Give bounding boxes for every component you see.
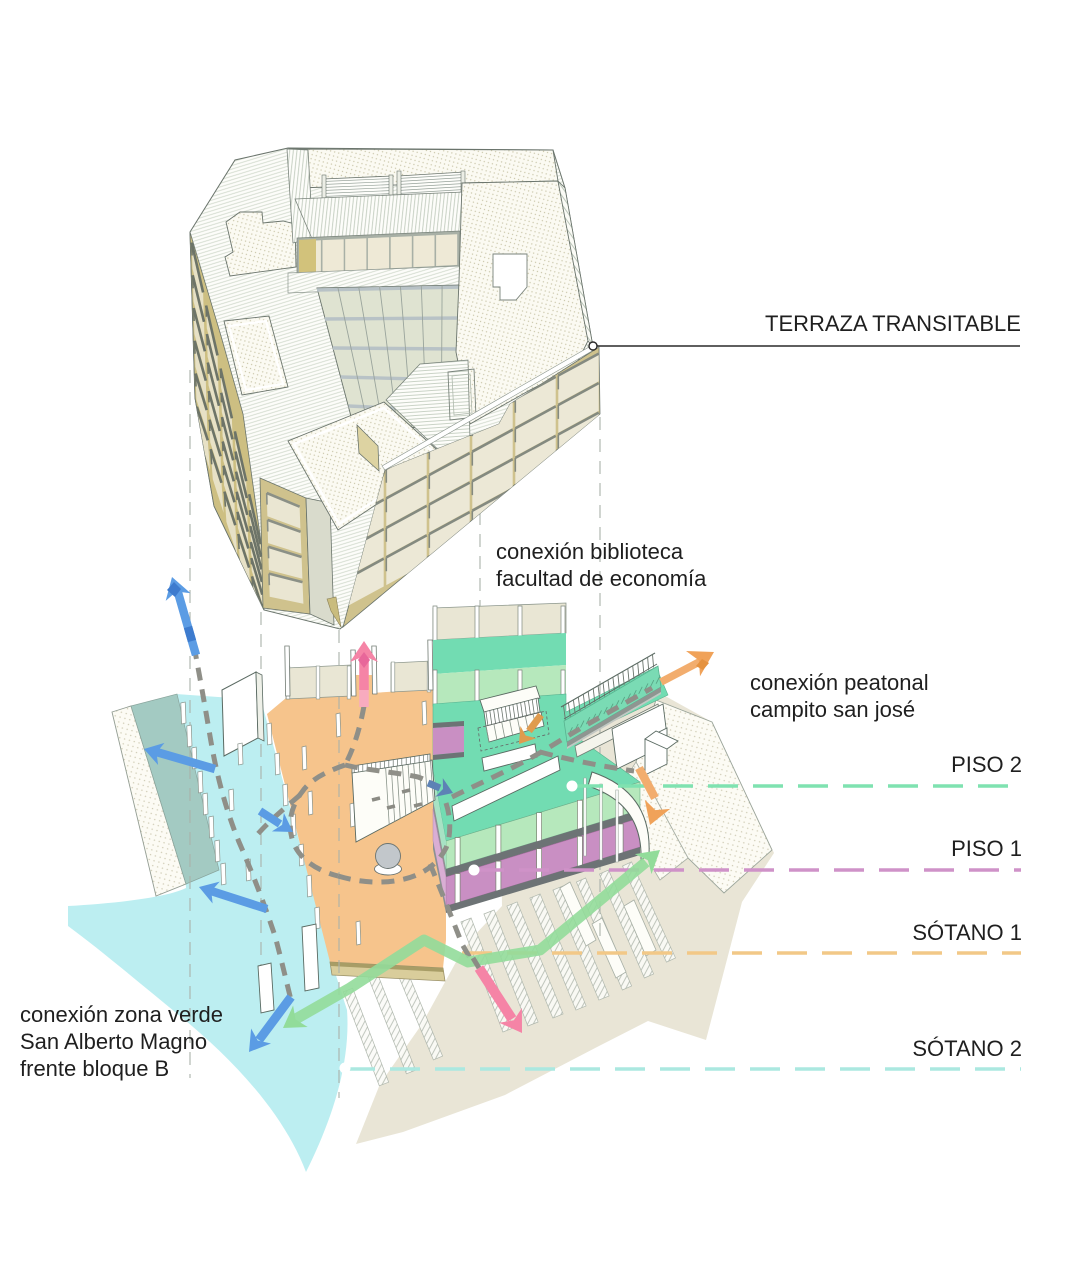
- svg-text:facultad de economía: facultad de economía: [496, 566, 707, 591]
- svg-text:SÓTANO 1: SÓTANO 1: [912, 920, 1022, 945]
- svg-text:PISO 2: PISO 2: [951, 752, 1022, 777]
- svg-text:conexión biblioteca: conexión biblioteca: [496, 539, 684, 564]
- svg-text:conexión peatonal: conexión peatonal: [750, 670, 929, 695]
- svg-text:frente bloque B: frente bloque B: [20, 1056, 169, 1081]
- svg-text:SÓTANO 2: SÓTANO 2: [912, 1036, 1022, 1061]
- svg-text:TERRAZA TRANSITABLE: TERRAZA TRANSITABLE: [765, 311, 1021, 336]
- svg-text:San Alberto Magno: San Alberto Magno: [20, 1029, 207, 1054]
- svg-text:PISO 1: PISO 1: [951, 836, 1022, 861]
- svg-text:campito san josé: campito san josé: [750, 697, 915, 722]
- svg-text:conexión zona verde: conexión zona verde: [20, 1002, 223, 1027]
